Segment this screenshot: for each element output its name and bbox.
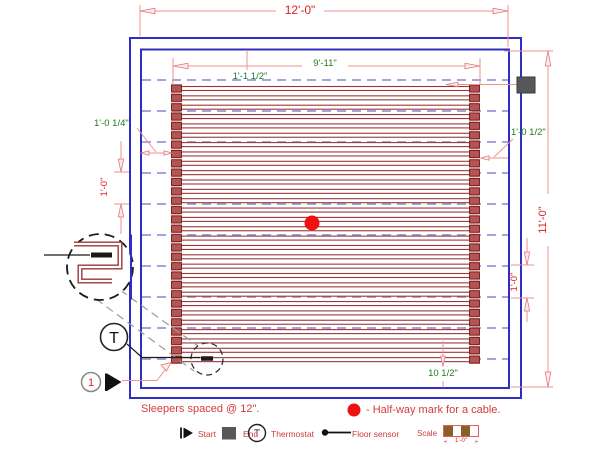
cable-turn-right xyxy=(470,132,480,139)
dim-room-width-label: 12'-0" xyxy=(278,3,322,17)
cable-turn-left xyxy=(172,300,182,307)
cable-turn-right xyxy=(470,150,480,157)
cable-run xyxy=(174,105,477,109)
dim-bottom-margin-label: 10 1/2" xyxy=(423,368,463,379)
cable-turn-right xyxy=(470,207,480,214)
cable-turn-right xyxy=(470,281,480,288)
cable-turn-left xyxy=(172,319,182,326)
dim-sleeper-gap-left-label: 1'-0" xyxy=(99,168,110,206)
cable-turn-left xyxy=(172,169,182,176)
cable-run xyxy=(174,180,477,184)
cable-turn-left xyxy=(172,197,182,204)
cable-turn-left xyxy=(172,122,182,129)
thermostat-letter: T xyxy=(109,330,119,347)
halfway-note: - Half-way mark for a cable. xyxy=(366,404,500,416)
cable-run xyxy=(174,189,477,193)
cable-turn-left xyxy=(172,309,182,316)
legend-floor-sensor-icon xyxy=(322,429,351,435)
cable-run xyxy=(174,124,477,128)
legend-start-label: Start xyxy=(198,429,216,439)
cable-run xyxy=(174,217,477,221)
cable-run xyxy=(174,96,477,100)
cable-run xyxy=(174,171,477,175)
scale-length-label: 1'-0" xyxy=(447,438,475,445)
cable-turn-right xyxy=(470,197,480,204)
cable-run xyxy=(174,358,477,362)
cable-run xyxy=(174,87,477,91)
legend-end-icon xyxy=(222,427,236,440)
cable-turn-right xyxy=(470,272,480,279)
legend-start-icon xyxy=(181,428,193,439)
dim-right-margin-label: 1'-0 1/2" xyxy=(511,127,546,138)
cable-run xyxy=(174,320,477,324)
cable-turn-left xyxy=(172,263,182,270)
cable-run xyxy=(174,143,477,147)
cable-turn-right xyxy=(470,216,480,223)
cable-run xyxy=(174,339,477,343)
cable-turn-left xyxy=(172,207,182,214)
cable-run xyxy=(174,330,477,334)
cable-turn-left xyxy=(172,291,182,298)
dim-sleeper-gap-right-label: 1'-0" xyxy=(509,263,520,301)
cable-turn-right xyxy=(470,104,480,111)
legend-scale-label: Scale xyxy=(417,429,437,438)
cable-turn-right xyxy=(470,356,480,363)
cable-turn-left xyxy=(172,113,182,120)
cable-turn-left xyxy=(172,85,182,92)
cable-run xyxy=(174,227,477,231)
cable-turn-left xyxy=(172,281,182,288)
cable-turn-right xyxy=(470,253,480,260)
leader-cable-end xyxy=(446,82,518,86)
cable-turn-left xyxy=(172,347,182,354)
cable-run xyxy=(174,245,477,249)
cable-run xyxy=(174,115,477,119)
cable-turn-left xyxy=(172,150,182,157)
legend-floor-sensor-label: Floor sensor xyxy=(352,429,399,439)
cable-run xyxy=(174,208,477,212)
cable-turn-right xyxy=(470,113,480,120)
dimension-sleeper-gap-left xyxy=(114,141,129,234)
cable-turn-right xyxy=(470,263,480,270)
cable-run xyxy=(174,292,477,296)
cable-turn-right xyxy=(470,235,480,242)
dim-left-margin-label: 1'-0 1/4" xyxy=(94,118,129,129)
plan-drawing: T 1 T xyxy=(0,0,600,450)
dimension-room-width xyxy=(140,5,508,47)
cable-run xyxy=(174,236,477,240)
start-number: 1 xyxy=(88,377,94,389)
cable-turn-left xyxy=(172,94,182,101)
cable-turn-left xyxy=(172,337,182,344)
cable-run xyxy=(174,199,477,203)
cable-turn-right xyxy=(470,94,480,101)
cable-turn-right xyxy=(470,160,480,167)
dim-mat-width-label: 9'-11" xyxy=(304,58,346,69)
cable-turn-right xyxy=(470,337,480,344)
legend-halfway-dot-icon xyxy=(348,404,361,417)
cable-turn-left xyxy=(172,272,182,279)
thermostat-marker: T xyxy=(101,324,128,351)
cable-run xyxy=(174,348,477,352)
cable-turn-left xyxy=(172,104,182,111)
cable-run xyxy=(174,255,477,259)
cable-turn-left xyxy=(172,188,182,195)
cable-run xyxy=(174,161,477,165)
cable-run xyxy=(174,302,477,306)
cable-turn-left xyxy=(172,132,182,139)
start-triangle-icon xyxy=(107,374,122,392)
cable-turn-right xyxy=(470,85,480,92)
cable-turn-right xyxy=(470,244,480,251)
cable-turn-left xyxy=(172,253,182,260)
dim-top-margin-label: 1'-1 1/2" xyxy=(221,71,279,82)
cable-run xyxy=(174,274,477,278)
cable-run xyxy=(174,264,477,268)
floor-heating-plan: T 1 T 12'-0" xyxy=(0,0,600,450)
cable-run xyxy=(174,133,477,137)
cable-turn-right xyxy=(470,328,480,335)
cable-runs-group xyxy=(174,87,477,362)
cable-turn-right xyxy=(470,319,480,326)
cable-run xyxy=(174,152,477,156)
cable-turn-right xyxy=(470,291,480,298)
cable-turn-left xyxy=(172,179,182,186)
sensor-detail-callout xyxy=(44,234,133,300)
legend-thermostat-label: Thermostat xyxy=(271,429,314,439)
cable-turn-right xyxy=(470,179,480,186)
halfway-mark-dot xyxy=(305,216,320,231)
start-marker: 1 xyxy=(82,373,122,392)
cable-turn-right xyxy=(470,122,480,129)
cable-turn-left xyxy=(172,328,182,335)
cable-turn-left xyxy=(172,235,182,242)
cable-turn-right xyxy=(470,225,480,232)
scale-bar xyxy=(443,425,479,437)
cable-turn-right xyxy=(470,347,480,354)
cable-run xyxy=(174,283,477,287)
cable-run xyxy=(174,311,477,315)
cable-turn-left xyxy=(172,244,182,251)
cable-turn-right xyxy=(470,169,480,176)
legend-end-label: End xyxy=(243,429,258,439)
cable-turn-left xyxy=(172,141,182,148)
cable-turn-right xyxy=(470,309,480,316)
cable-turn-left xyxy=(172,160,182,167)
dim-room-height-label: 11'-0" xyxy=(537,194,549,246)
sleepers-note: Sleepers spaced @ 12". xyxy=(141,403,259,415)
cable-turn-right xyxy=(470,188,480,195)
end-marker-square xyxy=(517,77,535,93)
cable-turn-left xyxy=(172,216,182,223)
cable-turn-right xyxy=(470,300,480,307)
cable-turn-right xyxy=(470,141,480,148)
cable-turn-left xyxy=(172,225,182,232)
